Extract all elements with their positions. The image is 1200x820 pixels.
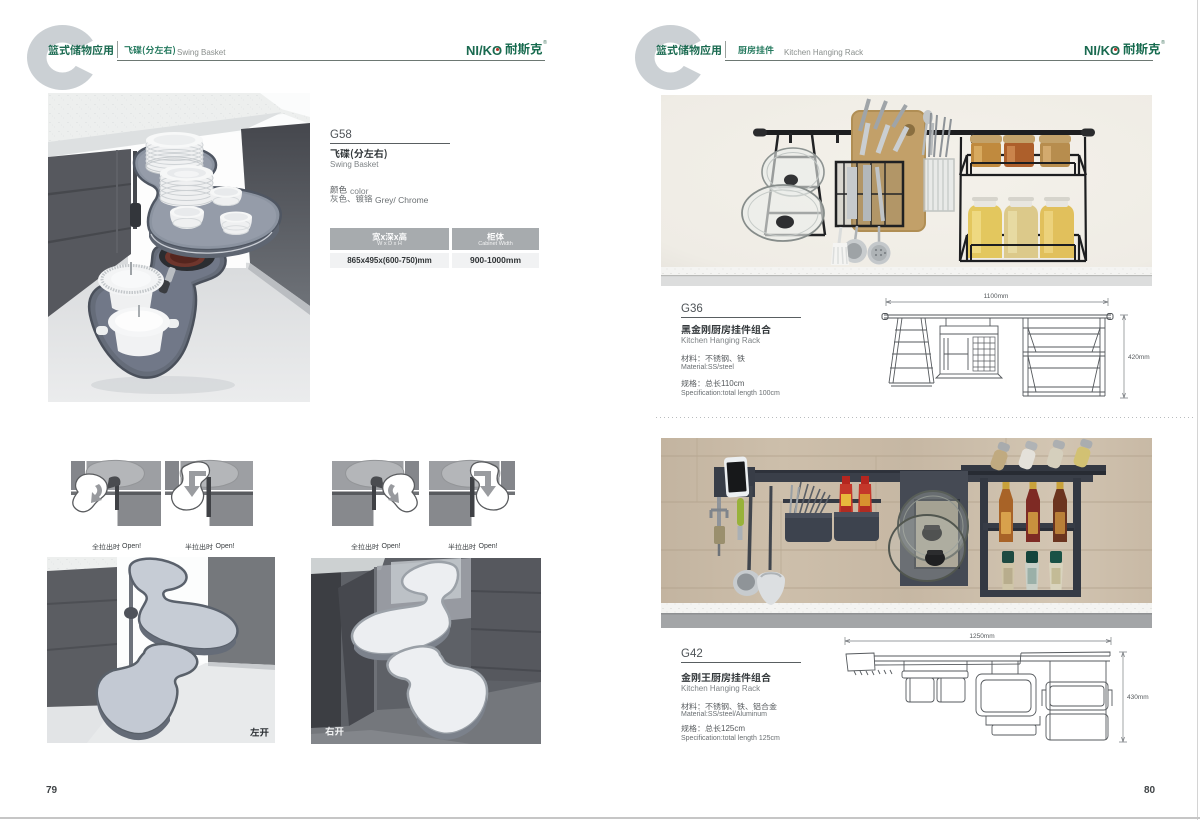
svg-text:1100mm: 1100mm [984,293,1009,300]
svg-text:420mm: 420mm [1128,354,1150,361]
svg-text:1250mm: 1250mm [969,633,994,640]
svg-text:430mm: 430mm [1127,694,1149,701]
